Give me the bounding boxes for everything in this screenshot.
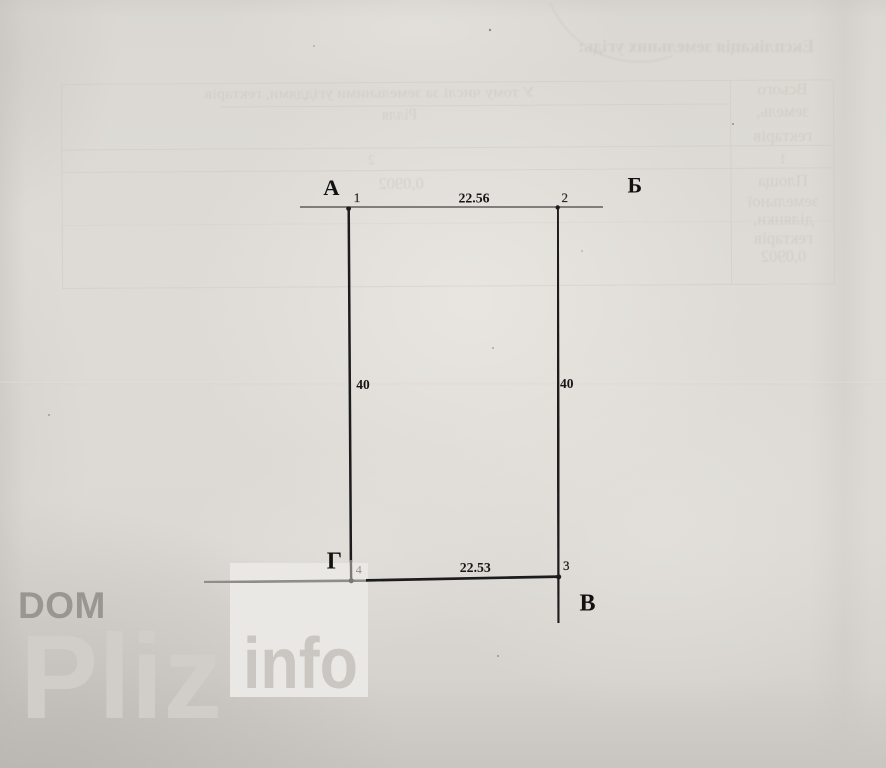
svg-text:Pliz: Pliz [20, 610, 222, 744]
svg-text:22.56: 22.56 [458, 190, 489, 205]
svg-text:В: В [580, 591, 596, 617]
svg-text:3: 3 [563, 558, 570, 573]
svg-text:Площа: Площа [758, 171, 808, 190]
svg-text:Б: Б [628, 173, 643, 198]
svg-text:гектарів: гектарів [753, 126, 812, 145]
svg-text:Рілля: Рілля [382, 106, 418, 123]
svg-text:0,0902: 0,0902 [761, 246, 806, 265]
svg-text:22.53: 22.53 [460, 560, 491, 575]
svg-text:Всього: Всього [757, 79, 807, 98]
svg-text:4: 4 [356, 563, 362, 577]
svg-text:40: 40 [560, 376, 574, 391]
svg-text:2: 2 [368, 153, 375, 168]
svg-text:1: 1 [779, 152, 786, 167]
svg-text:0,0902: 0,0902 [378, 174, 423, 193]
svg-text:DOM: DOM [18, 585, 106, 626]
svg-text:У тому числі за земельними угі: У тому числі за земельними угіддями, гек… [204, 85, 534, 103]
svg-text:ділянки,: ділянки, [753, 209, 814, 228]
svg-text:А: А [323, 175, 340, 200]
svg-text:земель,: земель, [756, 101, 809, 120]
svg-text:земельної: земельної [747, 191, 819, 210]
svg-text:2: 2 [562, 190, 569, 205]
svg-text:Експлікація земельних угідь:: Експлікація земельних угідь: [578, 36, 814, 56]
svg-text:Г: Г [327, 549, 342, 575]
svg-text:info: info [243, 624, 358, 704]
svg-text:40: 40 [356, 377, 370, 392]
svg-text:гектарів: гектарів [754, 228, 813, 247]
svg-text:1: 1 [354, 190, 361, 205]
